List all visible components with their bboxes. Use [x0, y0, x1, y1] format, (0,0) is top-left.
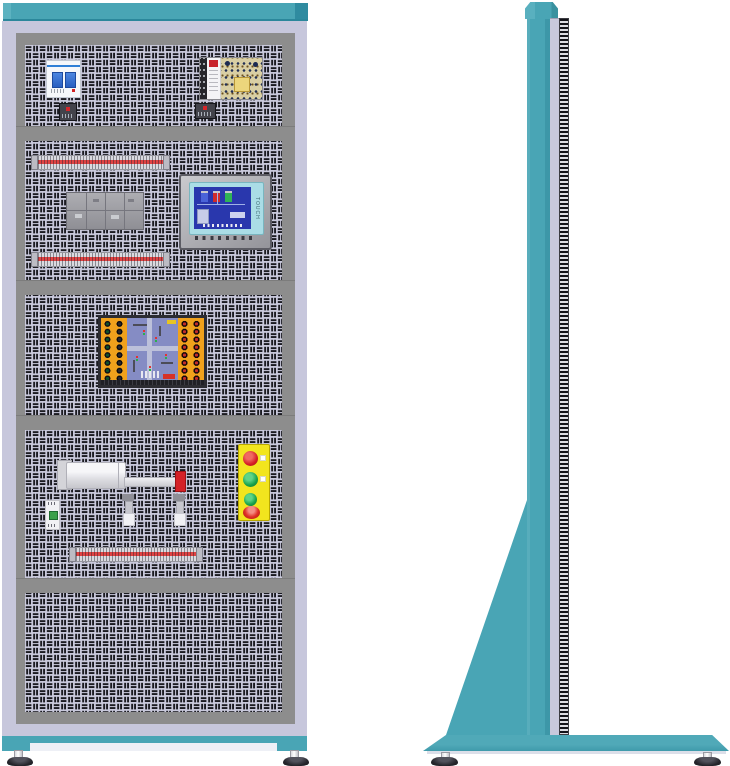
module-chip: [75, 214, 82, 218]
proximity-sensor-1: [121, 494, 135, 524]
micro-switch-pins: [48, 524, 57, 527]
breaker-toggle-1: [52, 72, 63, 88]
traffic-light-training-board: [98, 315, 207, 388]
screen-pipe: [197, 204, 245, 205]
terminal-strip-bottom: [69, 547, 203, 562]
section-divider-2: [16, 280, 295, 295]
base-corner-left: [2, 736, 30, 751]
switching-power-supply: [199, 57, 263, 100]
hmi-function-keys: [195, 236, 257, 240]
button-label: [260, 455, 266, 461]
pneumatic-cylinder: [66, 462, 126, 489]
base-rail: [30, 736, 277, 743]
sensor-head: [173, 494, 185, 501]
micro-switch-button: [49, 511, 58, 520]
breaker-accent-line: [47, 65, 80, 67]
board-wall: [161, 362, 173, 364]
mini-terminal-block-right: [195, 103, 216, 119]
psu-capacitor-2: [253, 62, 258, 67]
terminal-strip-top: [31, 155, 170, 170]
strip-ticks: [32, 156, 169, 169]
base-corner-right: [277, 736, 307, 751]
green-button-2: [244, 493, 257, 506]
terminal-red-dot: [66, 107, 70, 111]
module-seam: [86, 193, 87, 229]
strip-end-cap: [31, 155, 38, 170]
circuit-breaker: [46, 60, 81, 98]
module-vent: [128, 199, 134, 202]
screen-button-row: [203, 224, 243, 227]
support-gusset: [446, 500, 527, 735]
cabinet-side-view: [400, 0, 730, 766]
sensor-tag: [174, 513, 186, 526]
psu-terminals: [200, 58, 207, 99]
board-green-terminals: [103, 320, 112, 383]
top-cap: [525, 2, 558, 19]
cylinder-red-tip: [175, 471, 186, 492]
cylinder-seam: [118, 463, 119, 488]
strip-end-cap: [31, 252, 38, 267]
board-traffic-light: [155, 337, 157, 339]
psu-capacitor-1: [225, 61, 230, 66]
side-frame-strip: [550, 18, 559, 736]
psu-pcb: [221, 58, 262, 99]
strip-ticks: [32, 253, 169, 266]
board-wall: [159, 326, 161, 336]
module-seam: [67, 210, 143, 211]
board-zebra-crossing: [141, 371, 159, 378]
cabinet-front-view: TOUCH: [0, 0, 330, 766]
panel-edge-louvers: [559, 18, 569, 735]
module-seam: [124, 193, 125, 229]
board-bottom-terminals: [101, 380, 204, 385]
mini-terminal-block-left: [59, 103, 77, 121]
breaker-toggle-2: [65, 72, 76, 88]
psu-transformer: [234, 77, 250, 92]
hmi-touch-label: TOUCH: [251, 187, 262, 229]
red-button: [243, 451, 258, 466]
board-io-column-right: [178, 318, 204, 385]
psu-label: [207, 58, 221, 99]
micro-switch: [45, 500, 60, 530]
leveling-foot-left: [7, 757, 33, 766]
board-traffic-light: [136, 356, 138, 358]
leveling-foot-right: [283, 757, 309, 766]
training-cabinet-illustration: TOUCH: [0, 0, 730, 766]
proximity-sensor-2: [172, 494, 186, 524]
hmi-screen: [194, 187, 251, 229]
strip-end-cap: [163, 155, 170, 170]
board-red-terminals: [180, 320, 189, 383]
hmi-inner-frame: TOUCH: [189, 182, 264, 235]
psu-label-text-lines: [209, 70, 218, 94]
module-vent: [93, 199, 99, 202]
cabinet-column: [527, 18, 550, 735]
leveling-foot-rear: [694, 757, 721, 766]
terminal-red-dot: [203, 106, 207, 110]
board-traffic-light: [149, 366, 151, 368]
board-red-terminals: [192, 320, 201, 383]
screen-machine-icon: [197, 209, 209, 224]
board-yellow-marker: [167, 320, 176, 324]
strip-ticks: [70, 548, 202, 561]
board-traffic-light: [143, 330, 145, 332]
breaker-markings: [51, 89, 65, 93]
strip-end-cap: [196, 547, 203, 562]
screen-tank-blue: [201, 191, 208, 202]
green-button-1: [243, 472, 258, 487]
screen-pipe: [217, 193, 218, 204]
board-traffic-light: [165, 354, 167, 356]
terminal-pins: [62, 114, 74, 118]
module-chip: [111, 215, 119, 219]
plc-relay-module-group: [66, 192, 144, 230]
section-divider-3: [16, 415, 295, 430]
emergency-stop-button: [243, 506, 260, 519]
section-divider-1: [16, 126, 295, 141]
section-divider-4: [16, 578, 295, 593]
top-cap: [3, 3, 308, 21]
strip-end-cap: [69, 547, 76, 562]
terminal-pins: [198, 112, 213, 116]
leveling-foot-front: [431, 757, 458, 766]
base-plate-edge: [427, 751, 726, 754]
board-dark-terminals: [115, 320, 124, 383]
board-name-plate: [163, 374, 175, 379]
base-recess: [30, 743, 277, 751]
board-wall: [133, 324, 147, 326]
button-label: [260, 476, 266, 482]
screen-table-icon: [230, 212, 245, 218]
sensor-head: [122, 494, 134, 501]
board-wall: [133, 360, 135, 372]
module-seam: [105, 193, 106, 229]
breaker-indicator: [72, 89, 75, 92]
cylinder-rod: [124, 477, 178, 487]
base-plate: [423, 735, 729, 751]
hmi-touch-panel: TOUCH: [179, 174, 272, 250]
push-button-station: [238, 444, 270, 521]
terminal-strip-middle: [31, 252, 170, 267]
strip-end-cap: [163, 252, 170, 267]
psu-logo: [209, 60, 218, 67]
sensor-tag: [123, 513, 135, 526]
screen-tank-green: [225, 191, 232, 202]
micro-switch-pins: [48, 502, 57, 505]
board-io-column-left: [101, 318, 127, 385]
board-road-horizontal: [127, 346, 178, 351]
